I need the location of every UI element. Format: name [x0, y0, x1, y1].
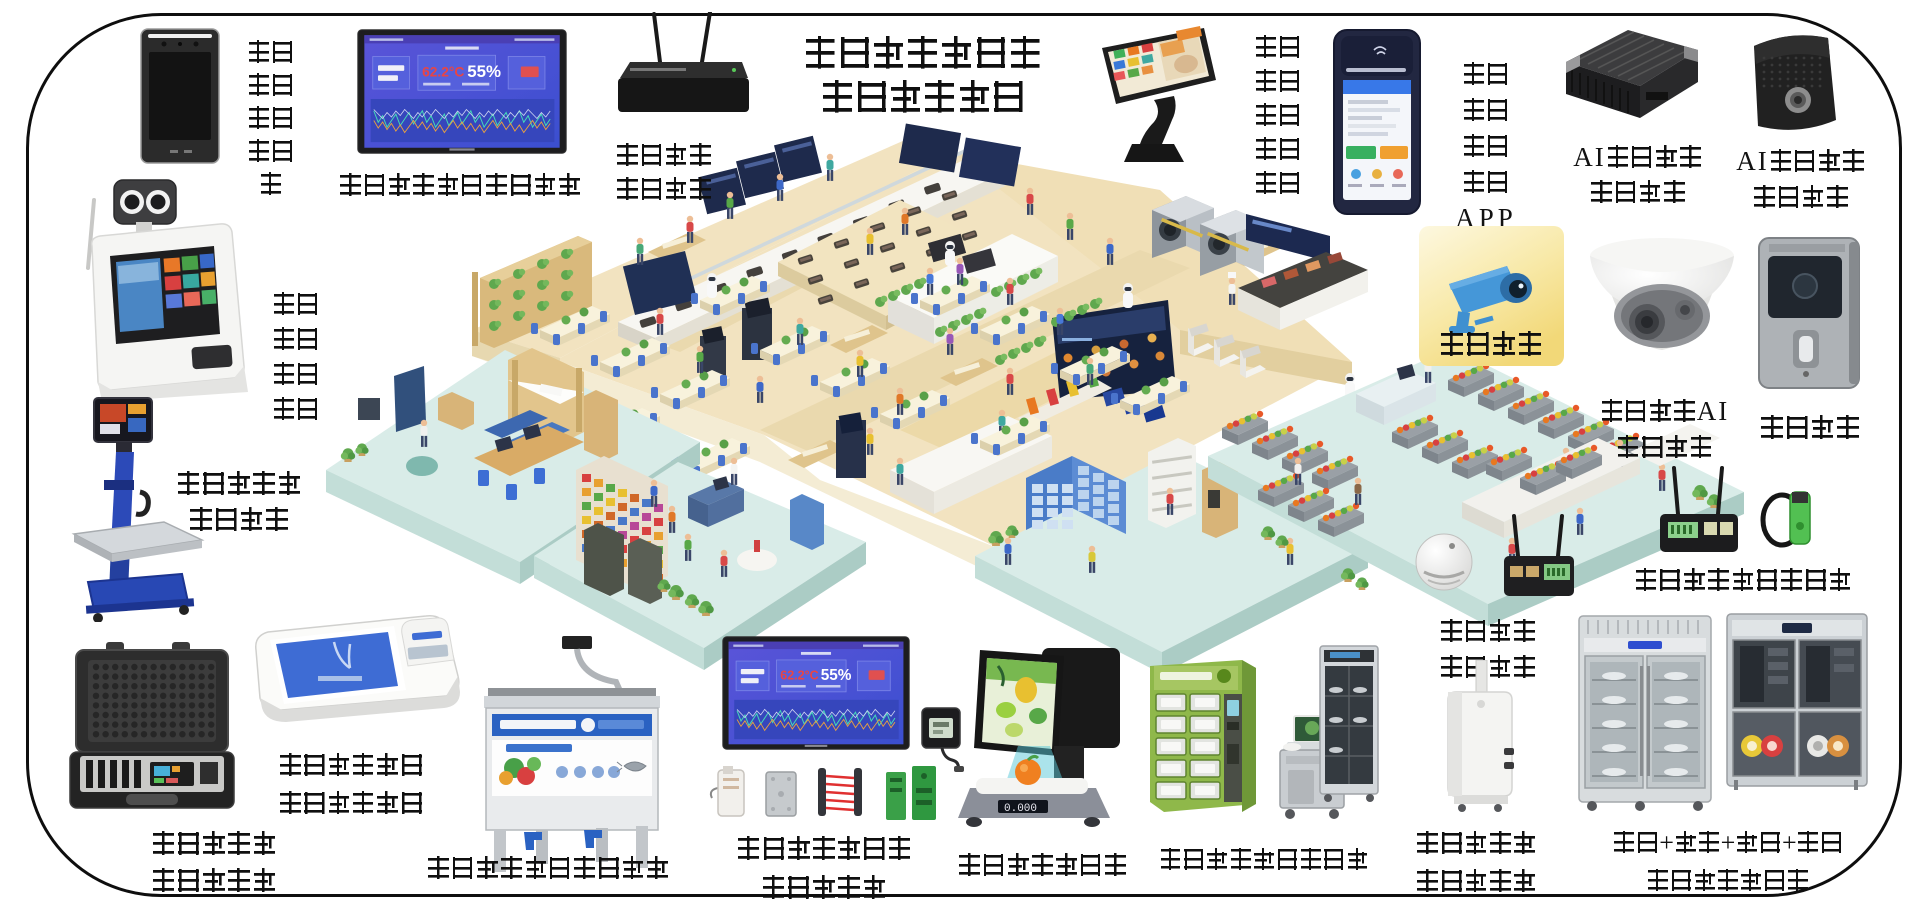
- svg-text:62.2°C: 62.2°C: [780, 668, 818, 682]
- svg-text:55%: 55%: [821, 667, 852, 684]
- svg-text:0.000: 0.000: [1004, 803, 1037, 815]
- svg-text:55%: 55%: [467, 62, 501, 81]
- svg-text:62.2°C: 62.2°C: [422, 65, 464, 80]
